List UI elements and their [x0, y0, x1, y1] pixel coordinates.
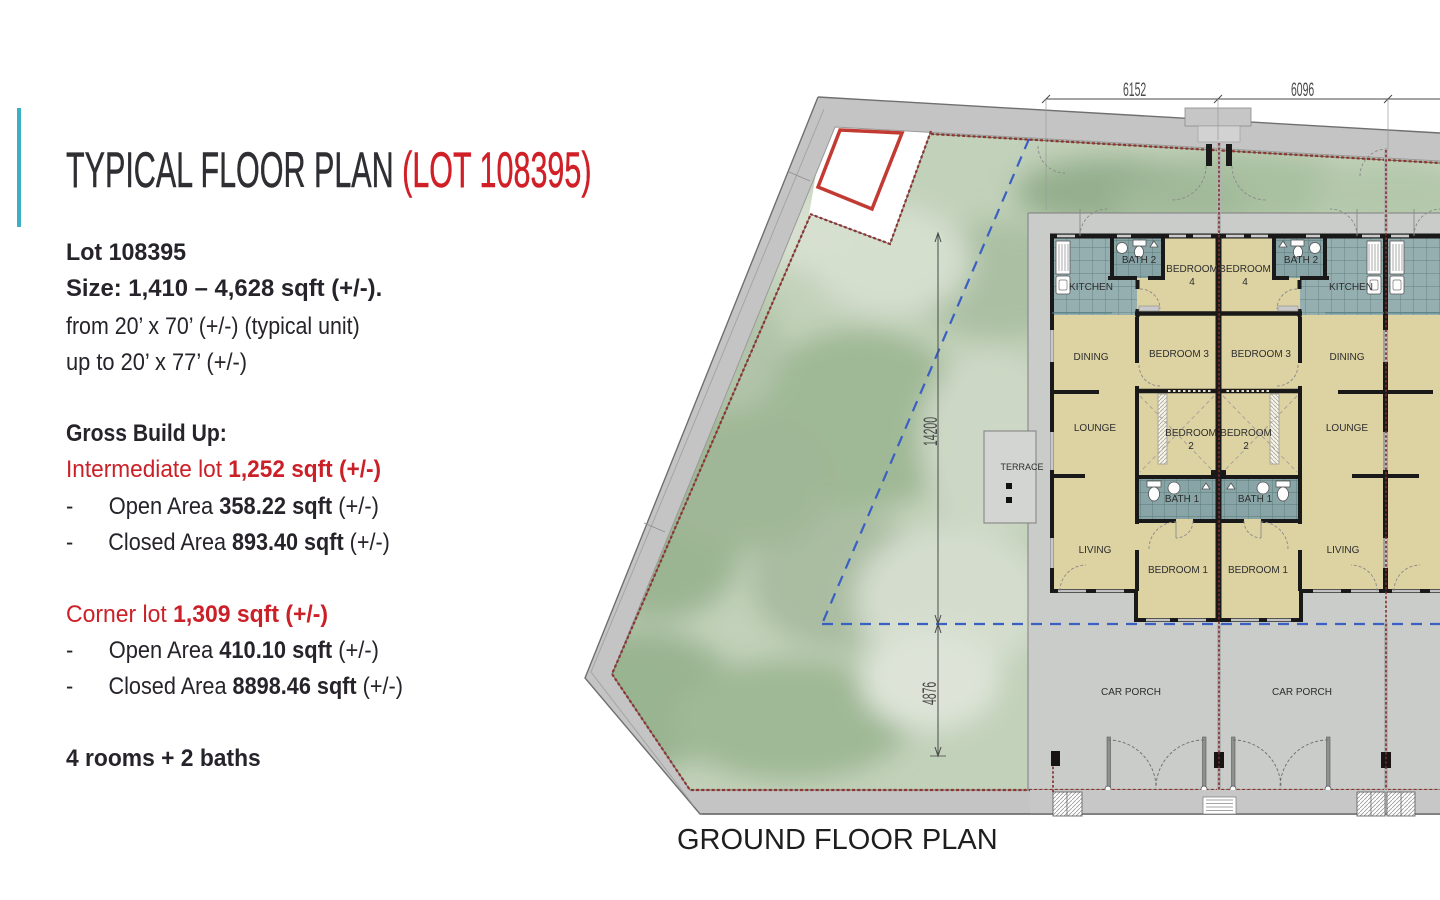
svg-text:BEDROOM: BEDROOM: [1219, 264, 1271, 275]
svg-text:6096: 6096: [1291, 80, 1314, 101]
svg-text:LIVING: LIVING: [1079, 545, 1112, 556]
svg-text:4: 4: [1189, 277, 1195, 288]
svg-text:BATH 1: BATH 1: [1165, 494, 1200, 505]
svg-text:DINING: DINING: [1074, 352, 1109, 363]
svg-text:BEDROOM: BEDROOM: [1220, 428, 1272, 439]
svg-text:CAR PORCH: CAR PORCH: [1101, 687, 1161, 698]
svg-text:BATH 2: BATH 2: [1122, 255, 1157, 266]
svg-text:2: 2: [1243, 441, 1249, 452]
svg-text:LOUNGE: LOUNGE: [1074, 423, 1117, 434]
svg-text:6152: 6152: [1123, 80, 1146, 101]
svg-text:BEDROOM 1: BEDROOM 1: [1148, 565, 1208, 576]
svg-text:KITCHEN: KITCHEN: [1069, 282, 1113, 293]
svg-text:BEDROOM: BEDROOM: [1165, 428, 1217, 439]
svg-text:KITCHEN: KITCHEN: [1329, 282, 1373, 293]
svg-text:4: 4: [1242, 277, 1248, 288]
svg-text:BEDROOM 3: BEDROOM 3: [1149, 349, 1209, 360]
svg-text:2: 2: [1188, 441, 1194, 452]
svg-text:14200: 14200: [921, 417, 942, 446]
svg-text:BATH 1: BATH 1: [1238, 494, 1273, 505]
svg-text:BEDROOM 3: BEDROOM 3: [1231, 349, 1291, 360]
svg-text:BEDROOM 1: BEDROOM 1: [1228, 565, 1288, 576]
svg-text:BEDROOM: BEDROOM: [1166, 264, 1218, 275]
svg-text:DINING: DINING: [1330, 352, 1365, 363]
svg-text:LOUNGE: LOUNGE: [1326, 423, 1369, 434]
svg-text:4876: 4876: [920, 682, 941, 705]
svg-text:CAR PORCH: CAR PORCH: [1272, 687, 1332, 698]
svg-text:LIVING: LIVING: [1327, 545, 1360, 556]
svg-text:BATH 2: BATH 2: [1284, 255, 1319, 266]
svg-text:TERRACE: TERRACE: [1000, 462, 1043, 472]
